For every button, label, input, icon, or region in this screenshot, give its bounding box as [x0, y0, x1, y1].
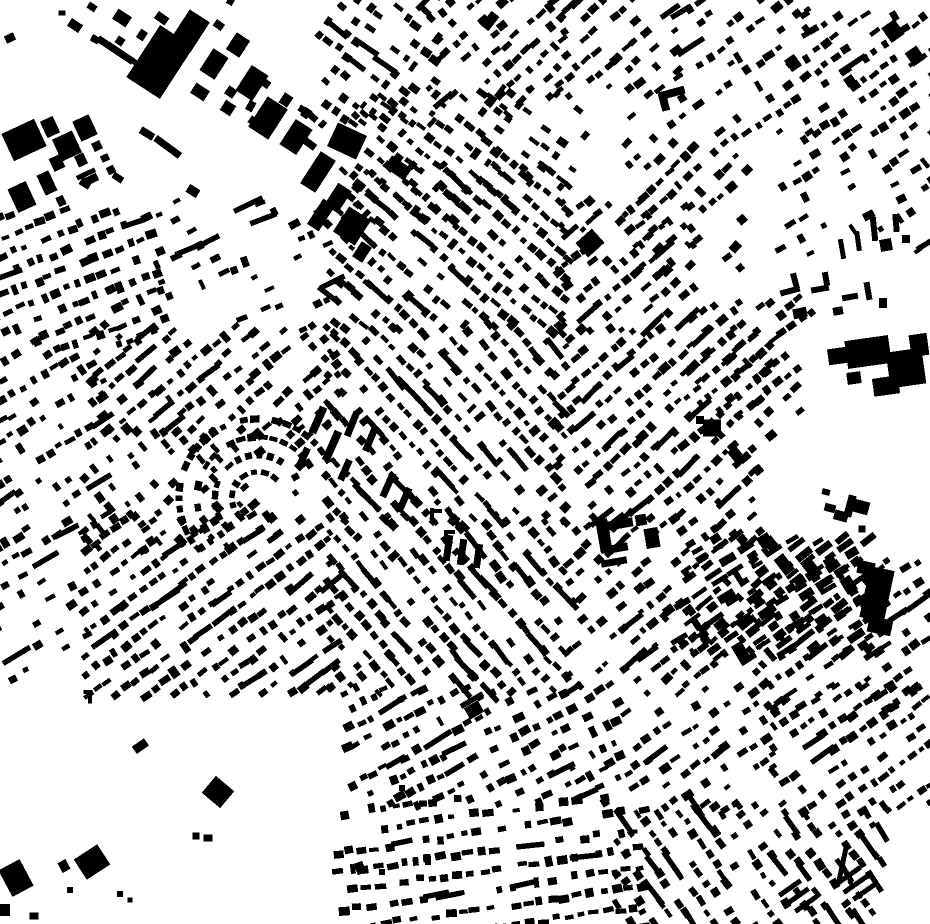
building — [536, 227, 549, 239]
building — [548, 555, 561, 568]
building — [750, 889, 761, 901]
building — [367, 169, 377, 179]
building — [21, 524, 31, 533]
building — [868, 148, 878, 159]
building — [454, 113, 465, 124]
building — [540, 142, 550, 151]
building — [726, 19, 734, 27]
building — [393, 609, 402, 618]
building — [692, 723, 699, 730]
building — [370, 549, 378, 558]
building — [229, 490, 236, 498]
building — [481, 869, 491, 875]
building — [587, 625, 596, 634]
building — [879, 298, 887, 308]
building — [226, 32, 250, 57]
building — [321, 77, 330, 86]
building — [78, 586, 89, 597]
building — [377, 122, 388, 133]
building — [337, 489, 345, 497]
building — [532, 667, 541, 676]
building — [763, 647, 777, 662]
building — [329, 317, 341, 328]
building — [340, 70, 351, 81]
building — [696, 18, 706, 28]
building — [212, 490, 219, 499]
building — [605, 680, 615, 689]
building — [501, 41, 512, 52]
building — [378, 248, 387, 257]
building — [809, 148, 822, 160]
building — [380, 741, 391, 751]
building — [730, 832, 738, 840]
building — [167, 448, 175, 456]
building — [148, 577, 158, 586]
building — [382, 719, 396, 732]
building — [759, 715, 769, 726]
building — [421, 667, 431, 677]
building — [606, 83, 613, 90]
building — [517, 676, 526, 686]
building — [458, 247, 466, 255]
building — [64, 436, 76, 445]
building — [408, 61, 418, 72]
building — [190, 83, 210, 102]
building — [99, 551, 111, 563]
building — [212, 502, 220, 510]
building — [765, 93, 775, 103]
building — [41, 293, 50, 304]
building — [9, 246, 17, 254]
building — [575, 229, 604, 258]
building — [635, 220, 646, 229]
building — [307, 230, 316, 239]
building — [811, 128, 822, 138]
building — [506, 637, 516, 648]
building — [568, 165, 577, 173]
building — [506, 79, 515, 88]
building — [541, 789, 554, 799]
building — [778, 181, 788, 191]
building — [506, 687, 517, 698]
building — [631, 56, 641, 66]
building — [179, 557, 189, 566]
building — [452, 40, 461, 49]
building — [511, 902, 522, 910]
building — [138, 441, 148, 452]
building — [482, 809, 494, 817]
building — [359, 590, 367, 598]
building — [439, 425, 451, 437]
building — [57, 423, 64, 430]
building — [611, 740, 617, 747]
building — [383, 461, 394, 471]
building — [465, 256, 477, 268]
building — [156, 286, 165, 295]
building — [537, 318, 547, 328]
building — [727, 60, 735, 67]
building — [785, 320, 797, 331]
building — [620, 468, 631, 478]
building — [361, 336, 370, 345]
building — [533, 181, 542, 190]
building — [19, 385, 27, 393]
building — [499, 152, 510, 163]
building — [0, 859, 34, 897]
building — [137, 398, 148, 409]
building — [601, 556, 628, 567]
building — [426, 699, 434, 706]
building — [619, 442, 632, 455]
building — [381, 825, 389, 833]
building — [637, 337, 649, 349]
building — [905, 207, 916, 218]
building — [149, 428, 160, 440]
building — [860, 765, 870, 774]
building — [793, 159, 802, 167]
building — [234, 365, 243, 374]
building — [259, 626, 268, 636]
building — [64, 476, 72, 484]
building — [110, 545, 120, 554]
building — [487, 229, 499, 241]
building — [614, 750, 626, 762]
building — [659, 195, 669, 204]
building — [172, 197, 180, 204]
building — [432, 509, 442, 513]
building — [842, 293, 859, 302]
building — [708, 197, 717, 206]
building — [514, 255, 523, 264]
building — [408, 441, 415, 448]
building — [693, 163, 703, 172]
building — [506, 580, 515, 589]
building — [620, 848, 631, 859]
building — [413, 654, 423, 665]
building — [556, 855, 568, 865]
building — [614, 306, 622, 313]
building — [915, 723, 926, 733]
building — [572, 640, 583, 650]
building — [792, 364, 802, 374]
building — [459, 93, 469, 102]
building — [635, 408, 645, 418]
building — [457, 577, 477, 600]
building — [151, 684, 161, 694]
building — [40, 116, 60, 138]
building — [860, 10, 871, 19]
building — [499, 550, 509, 561]
building — [541, 518, 549, 526]
building — [653, 153, 666, 166]
building — [844, 791, 855, 802]
building — [245, 100, 256, 113]
building — [902, 235, 910, 243]
building — [250, 415, 260, 423]
building — [406, 597, 415, 606]
building — [689, 860, 697, 868]
building — [126, 406, 136, 415]
building — [43, 210, 56, 221]
building — [492, 865, 502, 872]
building — [758, 660, 767, 670]
building — [55, 327, 66, 336]
building — [632, 869, 644, 881]
building — [583, 195, 595, 207]
building — [535, 803, 544, 812]
building — [494, 725, 502, 732]
building — [399, 785, 405, 791]
building — [663, 585, 673, 594]
building — [627, 112, 637, 121]
building — [539, 432, 549, 442]
building — [879, 732, 887, 740]
building — [800, 722, 808, 730]
building — [181, 460, 191, 471]
building — [106, 455, 114, 464]
building — [0, 252, 9, 262]
building — [712, 586, 721, 595]
building — [736, 319, 747, 329]
building — [339, 166, 349, 176]
building — [621, 612, 644, 631]
building — [511, 54, 522, 65]
building — [195, 415, 205, 425]
building — [732, 114, 742, 124]
building — [888, 766, 896, 774]
building — [422, 535, 432, 545]
building — [818, 708, 829, 719]
building — [389, 899, 399, 907]
building — [13, 488, 24, 498]
building — [595, 399, 604, 408]
building — [633, 76, 647, 89]
building — [26, 257, 35, 267]
building — [179, 681, 189, 691]
building — [59, 11, 66, 16]
building — [498, 239, 506, 247]
building — [870, 778, 879, 787]
building — [709, 659, 719, 669]
building — [158, 279, 166, 286]
building — [444, 761, 465, 777]
building — [406, 138, 414, 146]
building — [828, 765, 840, 775]
building — [598, 352, 609, 363]
building — [848, 143, 857, 152]
building — [512, 381, 521, 390]
building — [367, 790, 374, 797]
building — [645, 400, 654, 409]
building — [692, 384, 701, 393]
building — [0, 458, 3, 466]
building — [545, 238, 555, 248]
building — [588, 750, 596, 759]
building — [832, 693, 842, 703]
building — [512, 426, 522, 435]
building — [899, 759, 906, 766]
building — [380, 334, 389, 344]
building — [391, 837, 413, 847]
building — [380, 472, 397, 499]
building — [613, 386, 622, 395]
building — [796, 233, 806, 244]
building — [675, 688, 685, 698]
building — [479, 770, 488, 779]
building — [448, 18, 457, 27]
building — [490, 330, 501, 341]
building — [571, 891, 582, 898]
building — [348, 119, 359, 128]
building — [135, 492, 146, 503]
building — [128, 278, 137, 287]
building — [850, 123, 862, 133]
building — [7, 389, 16, 398]
building — [660, 820, 667, 827]
building — [686, 223, 696, 233]
building — [188, 594, 196, 602]
building — [828, 821, 837, 830]
building — [352, 102, 360, 110]
building — [202, 690, 210, 698]
building — [397, 402, 405, 411]
building — [717, 46, 726, 55]
building — [466, 2, 475, 10]
building — [175, 482, 183, 492]
building — [406, 819, 416, 826]
building — [95, 269, 108, 280]
building — [652, 726, 661, 735]
building — [57, 303, 68, 314]
building — [137, 364, 158, 384]
building — [778, 799, 787, 807]
building — [695, 493, 706, 504]
building — [454, 890, 465, 897]
building — [916, 232, 930, 252]
building — [450, 852, 461, 862]
building — [397, 128, 407, 138]
building — [520, 768, 527, 775]
building — [510, 298, 517, 305]
building — [90, 600, 98, 609]
building — [635, 514, 648, 527]
building — [157, 572, 166, 581]
building — [768, 879, 776, 887]
building — [466, 403, 476, 413]
building — [424, 153, 431, 160]
building — [32, 550, 60, 569]
building — [360, 884, 371, 890]
building — [471, 307, 478, 314]
building — [588, 909, 599, 914]
building — [722, 252, 733, 262]
building — [435, 449, 444, 458]
building — [219, 423, 227, 430]
building — [215, 398, 227, 409]
building — [549, 749, 562, 761]
building — [331, 613, 344, 626]
building — [407, 178, 418, 189]
building — [416, 684, 429, 695]
building — [176, 505, 183, 513]
building — [640, 281, 651, 292]
building — [747, 687, 760, 700]
building — [455, 155, 464, 163]
building — [437, 836, 444, 845]
building — [643, 689, 651, 697]
building — [666, 119, 676, 129]
building — [158, 674, 171, 686]
building — [380, 670, 388, 678]
building — [65, 599, 78, 611]
building — [661, 803, 670, 813]
building — [447, 530, 455, 534]
building — [512, 668, 521, 677]
building — [33, 315, 42, 322]
building — [90, 623, 97, 630]
building — [480, 519, 492, 531]
building — [860, 898, 870, 908]
building — [791, 830, 801, 841]
building — [325, 512, 335, 523]
building — [473, 463, 482, 472]
building — [682, 170, 694, 182]
building — [870, 48, 878, 56]
building — [112, 9, 132, 28]
building — [762, 385, 772, 395]
building — [346, 628, 358, 641]
building — [210, 443, 220, 454]
building — [71, 339, 79, 349]
building — [359, 101, 367, 109]
building — [632, 743, 642, 753]
building — [132, 738, 149, 754]
building — [807, 308, 817, 318]
building — [120, 660, 131, 671]
building — [645, 421, 657, 433]
building — [540, 210, 551, 221]
building — [534, 617, 543, 626]
building — [436, 272, 445, 280]
building — [835, 798, 847, 809]
building — [334, 370, 342, 378]
building — [508, 348, 519, 359]
building — [333, 535, 342, 544]
building — [370, 74, 380, 83]
building — [540, 624, 551, 635]
building — [381, 79, 391, 89]
building — [550, 41, 560, 51]
building — [646, 617, 660, 630]
building — [598, 869, 608, 875]
building — [337, 459, 352, 482]
building — [821, 488, 830, 496]
building — [522, 262, 532, 272]
building — [452, 871, 463, 879]
building — [755, 0, 765, 4]
building — [663, 307, 674, 318]
building — [716, 484, 742, 509]
building — [335, 252, 347, 264]
building — [378, 639, 388, 649]
building — [127, 592, 138, 602]
building — [62, 499, 70, 507]
building — [736, 747, 748, 758]
building — [380, 805, 387, 812]
building — [543, 73, 554, 83]
building — [30, 913, 39, 920]
building — [410, 38, 421, 49]
